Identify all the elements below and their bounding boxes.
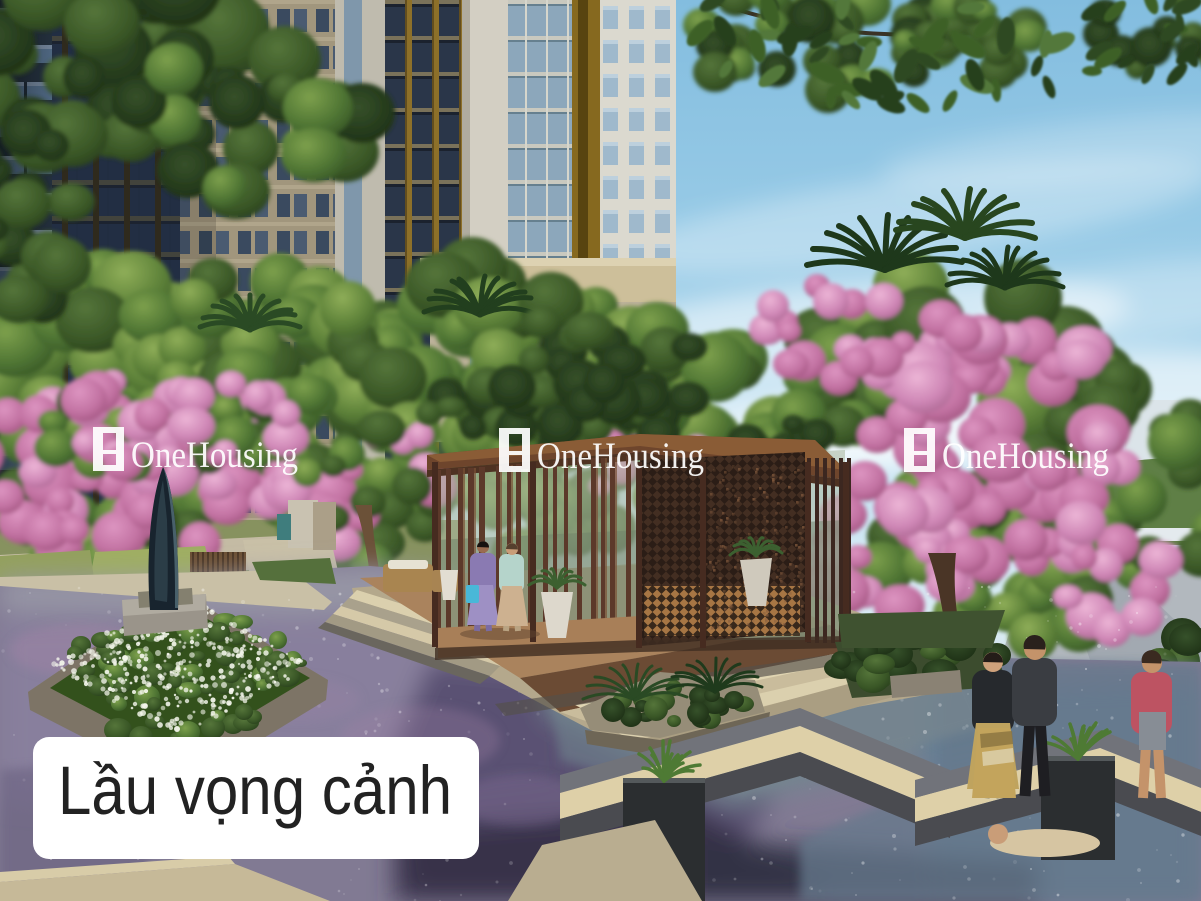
svg-text:OneHousing: OneHousing: [537, 436, 704, 477]
svg-text:OneHousing: OneHousing: [942, 436, 1109, 477]
svg-text:OneHousing: OneHousing: [131, 435, 298, 476]
svg-text:Lầu vọng cảnh: Lầu vọng cảnh: [58, 752, 452, 829]
